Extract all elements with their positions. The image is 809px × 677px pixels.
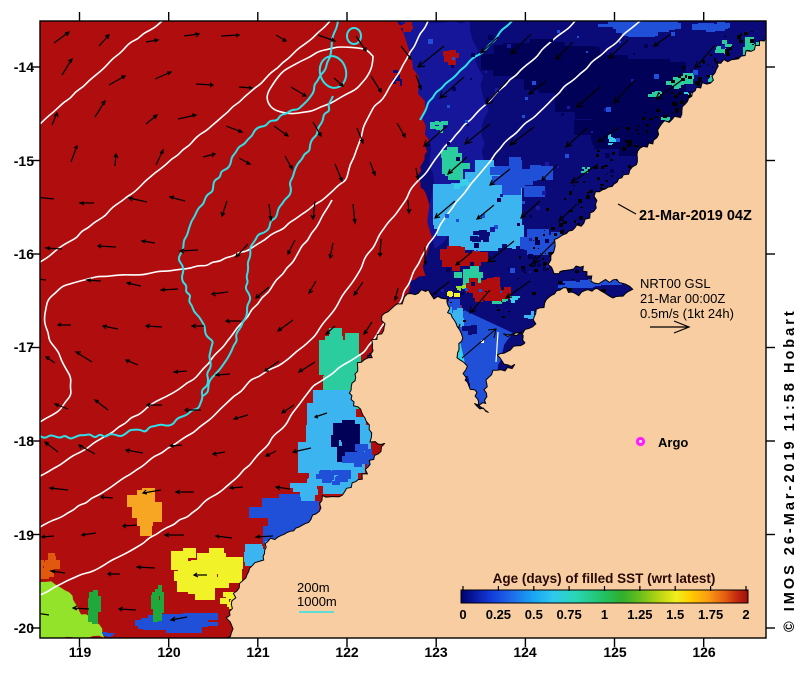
svg-text:1.25: 1.25 xyxy=(627,607,652,622)
svg-text:123: 123 xyxy=(424,644,448,660)
svg-text:-14: -14 xyxy=(14,59,34,75)
svg-text:1.5: 1.5 xyxy=(666,607,684,622)
svg-text:21-Mar 00:00Z: 21-Mar 00:00Z xyxy=(640,291,725,306)
svg-text:Argo: Argo xyxy=(658,435,688,450)
svg-text:1.75: 1.75 xyxy=(698,607,723,622)
svg-text:-16: -16 xyxy=(14,246,34,262)
svg-text:121: 121 xyxy=(246,644,270,660)
svg-text:Age (days) of filled SST (wrt: Age (days) of filled SST (wrt latest) xyxy=(493,571,716,586)
svg-text:200m: 200m xyxy=(297,580,330,595)
svg-text:-17: -17 xyxy=(14,339,34,355)
svg-text:126: 126 xyxy=(692,644,716,660)
svg-text:0.25: 0.25 xyxy=(486,607,511,622)
svg-text:-19: -19 xyxy=(14,527,34,543)
svg-text:© IMOS 26-Mar-2019 11:58 Hobar: © IMOS 26-Mar-2019 11:58 Hobart xyxy=(782,308,798,632)
svg-text:119: 119 xyxy=(69,644,92,660)
svg-text:0: 0 xyxy=(459,607,466,622)
svg-text:-15: -15 xyxy=(14,153,34,169)
svg-text:-18: -18 xyxy=(14,433,34,449)
svg-text:NRT00 GSL: NRT00 GSL xyxy=(640,276,711,291)
svg-text:1000m: 1000m xyxy=(297,594,337,609)
svg-text:-20: -20 xyxy=(14,620,34,636)
svg-text:0.5m/s (1kt 24h): 0.5m/s (1kt 24h) xyxy=(640,306,734,321)
svg-text:1: 1 xyxy=(601,607,608,622)
svg-text:125: 125 xyxy=(603,644,627,660)
svg-text:0.5: 0.5 xyxy=(525,607,543,622)
svg-text:122: 122 xyxy=(335,644,359,660)
svg-text:0.75: 0.75 xyxy=(556,607,581,622)
svg-text:120: 120 xyxy=(157,644,181,660)
svg-text:21-Mar-2019 04Z: 21-Mar-2019 04Z xyxy=(639,208,752,224)
svg-text:124: 124 xyxy=(513,644,537,660)
svg-text:2: 2 xyxy=(742,607,749,622)
